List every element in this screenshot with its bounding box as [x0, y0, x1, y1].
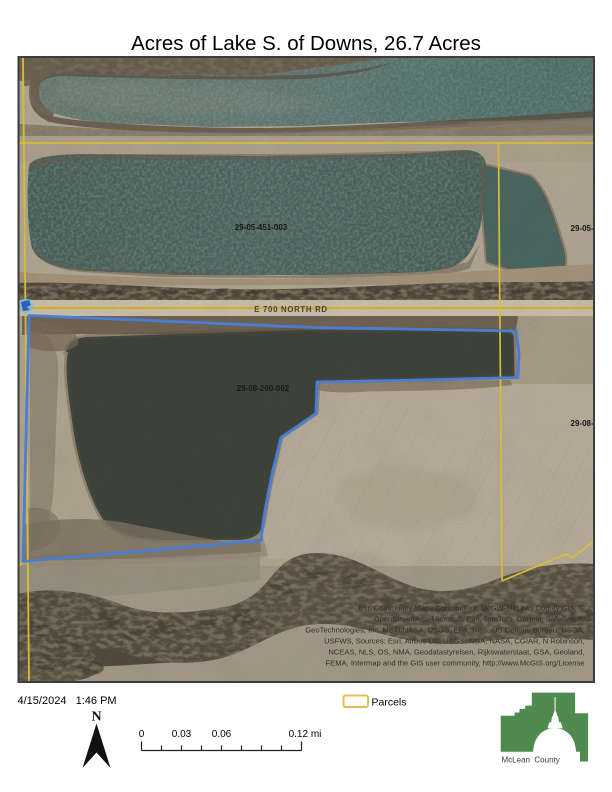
svg-text:N: N [91, 710, 101, 725]
svg-text:Parcels: Parcels [372, 697, 407, 709]
svg-text:0.12 mi: 0.12 mi [289, 729, 322, 740]
svg-text:0.03: 0.03 [172, 729, 192, 740]
svg-text:0: 0 [139, 729, 145, 740]
svg-text:4/15/2024 1:46 PM: 4/15/2024 1:46 PM [18, 695, 117, 707]
svg-text:0.06: 0.06 [212, 729, 232, 740]
svg-text:McLean County: McLean County [502, 756, 560, 765]
